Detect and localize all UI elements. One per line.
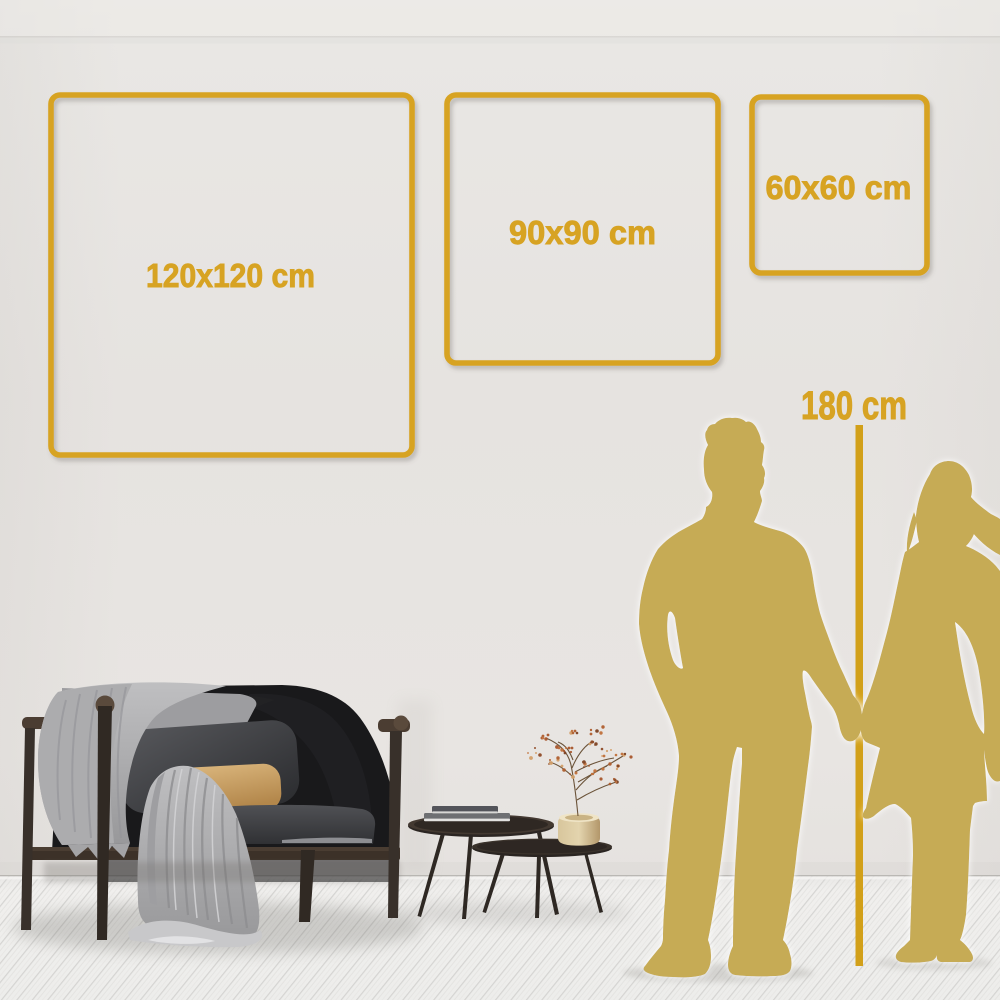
svg-text:90x90 cm: 90x90 cm [509, 214, 656, 251]
svg-text:60x60 cm: 60x60 cm [766, 169, 912, 206]
svg-text:180 cm: 180 cm [801, 384, 907, 428]
svg-text:120x120 cm: 120x120 cm [146, 257, 315, 294]
